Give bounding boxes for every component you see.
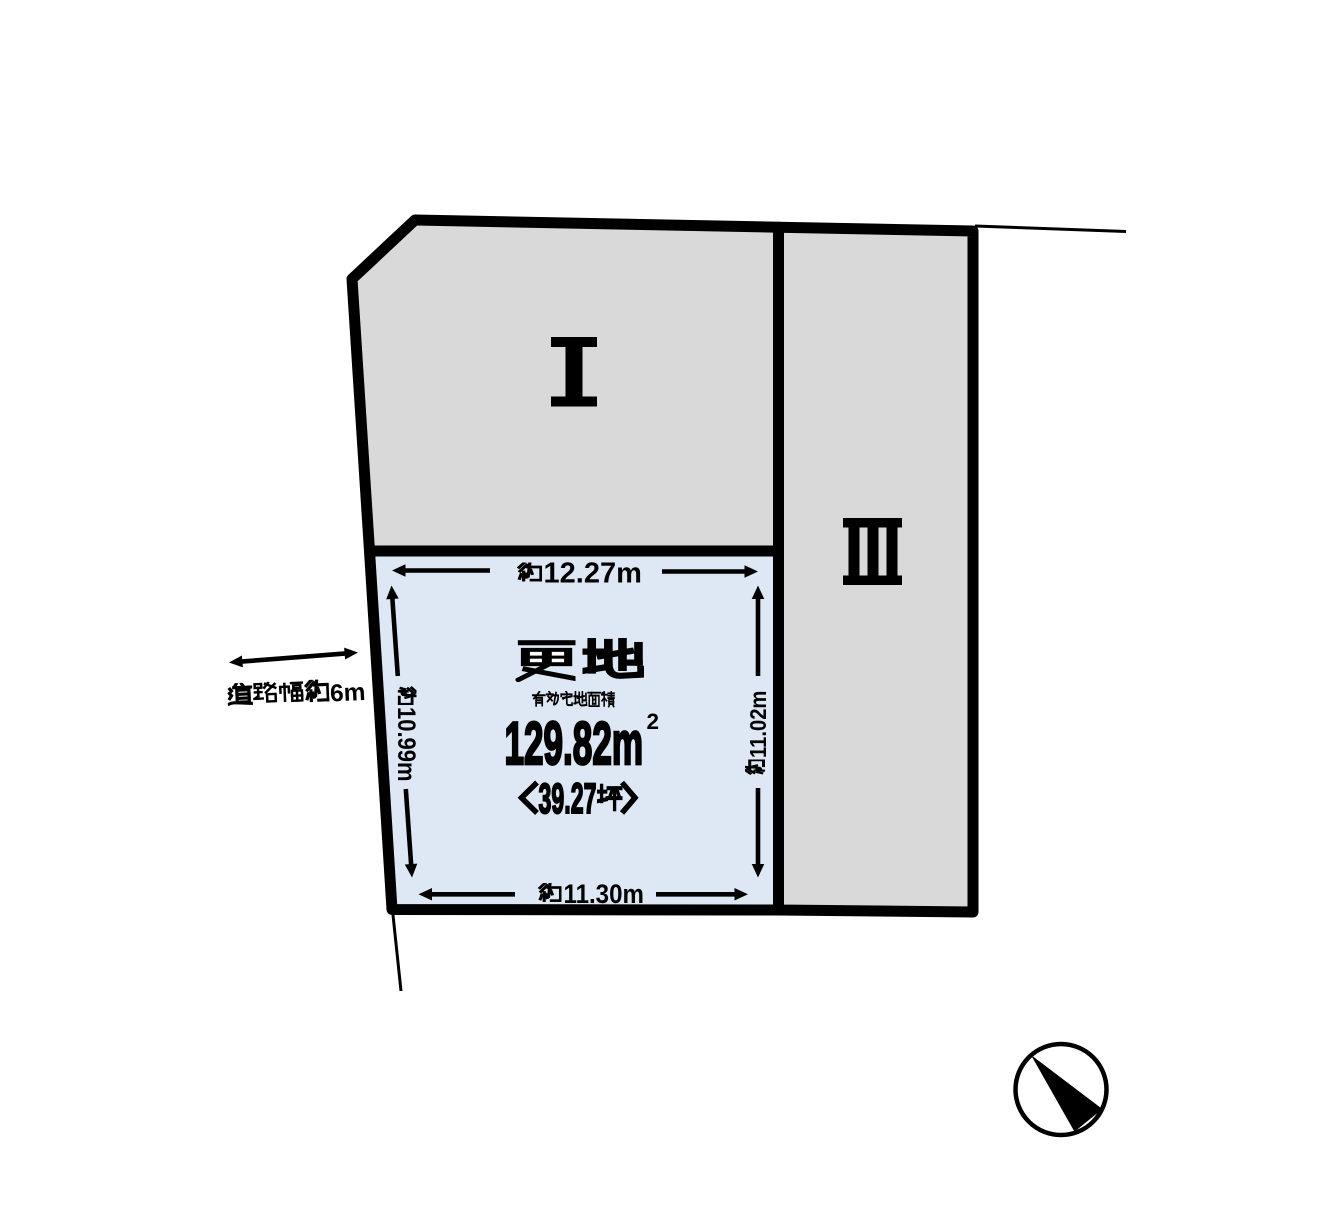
svg-text:11.30m: 11.30m bbox=[564, 880, 644, 909]
svg-text:12.27m: 12.27m bbox=[544, 558, 642, 590]
svg-text:10.99m: 10.99m bbox=[393, 707, 421, 782]
svg-text:2: 2 bbox=[647, 709, 660, 734]
svg-text:39.27: 39.27 bbox=[539, 776, 597, 823]
svg-text:6m: 6m bbox=[329, 679, 366, 708]
svg-text:11.02m: 11.02m bbox=[745, 691, 772, 758]
svg-text:129.82m: 129.82m bbox=[505, 712, 644, 778]
